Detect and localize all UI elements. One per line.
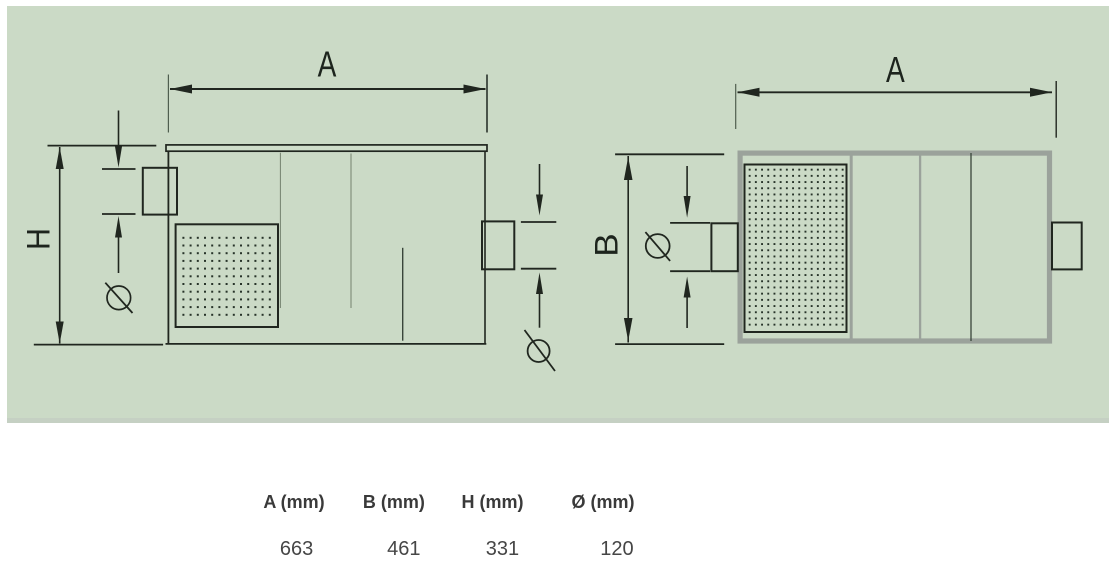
- svg-text:H: H: [21, 228, 57, 250]
- svg-text:663: 663: [280, 538, 313, 560]
- svg-text:120: 120: [600, 538, 633, 560]
- svg-text:B: B: [590, 233, 625, 256]
- svg-text:B (mm): B (mm): [363, 492, 425, 512]
- svg-text:A: A: [318, 44, 337, 84]
- svg-text:Ø (mm): Ø (mm): [572, 492, 635, 512]
- svg-text:A (mm): A (mm): [263, 492, 324, 512]
- svg-text:461: 461: [387, 538, 420, 560]
- svg-text:H (mm): H (mm): [462, 492, 524, 512]
- svg-text:A: A: [886, 49, 905, 89]
- svg-text:331: 331: [486, 538, 519, 560]
